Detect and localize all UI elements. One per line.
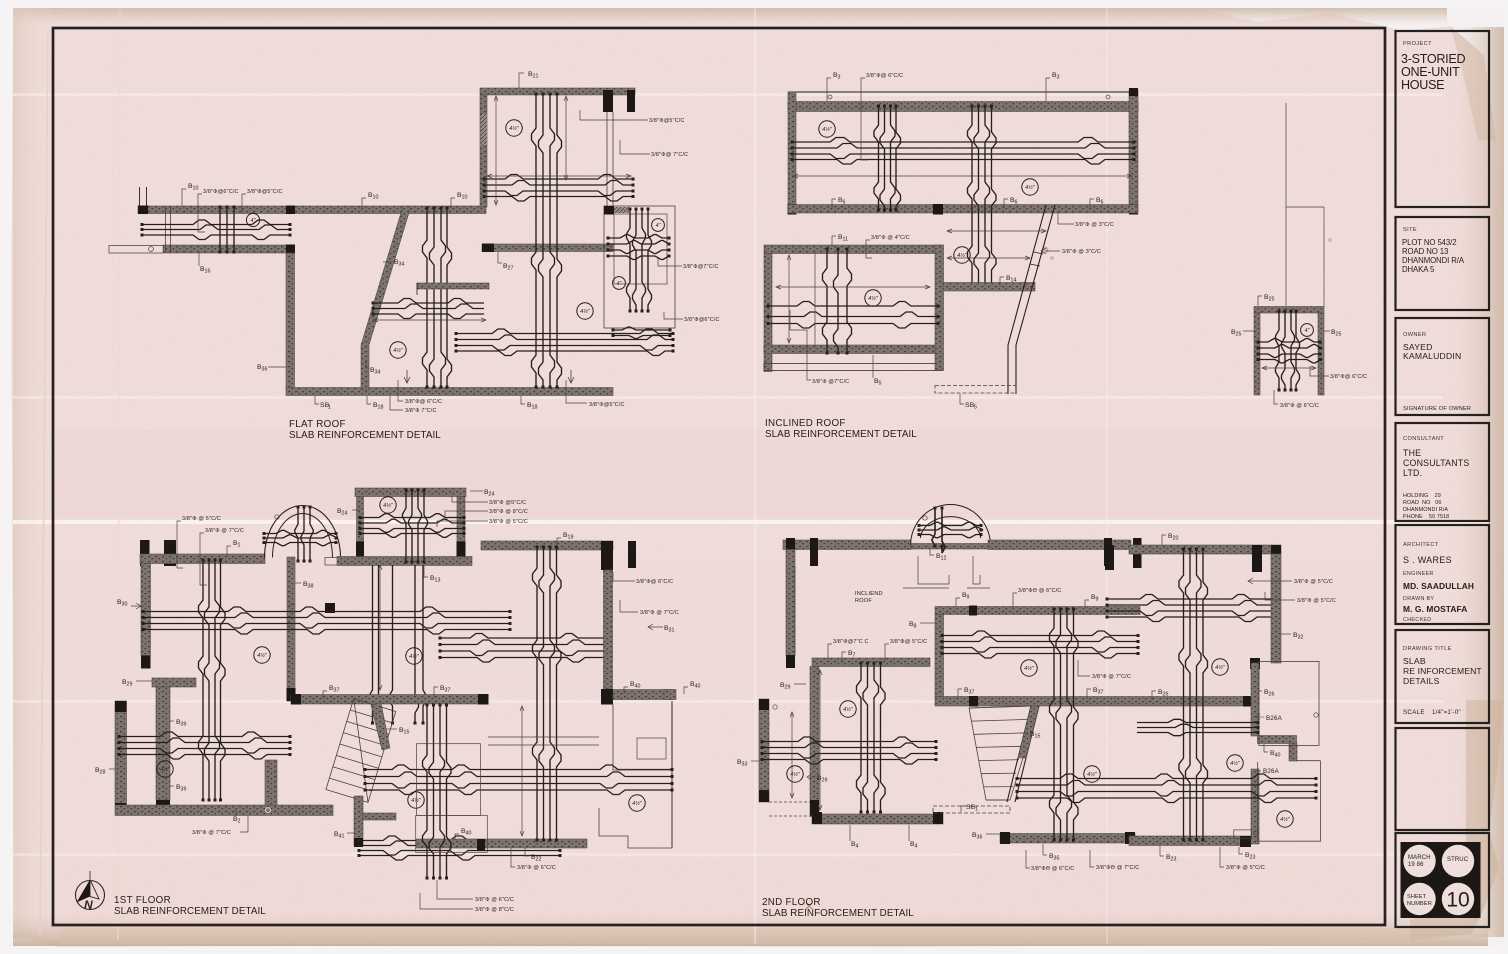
svg-text:3/8"Φ @ 7"C/C: 3/8"Φ @ 7"C/C bbox=[1092, 674, 1131, 680]
svg-text:DHAKA 5: DHAKA 5 bbox=[1402, 265, 1435, 274]
svg-text:3/8"Φ @ 5"C/C: 3/8"Φ @ 5"C/C bbox=[1297, 598, 1336, 604]
svg-text:N: N bbox=[84, 898, 93, 912]
svg-text:3/8"Φ @ 7"C/C: 3/8"Φ @ 7"C/C bbox=[192, 830, 231, 836]
svg-text:PROJECT: PROJECT bbox=[1403, 41, 1432, 47]
svg-text:3/8"Φ @ 3"C/C: 3/8"Φ @ 3"C/C bbox=[1062, 249, 1101, 255]
svg-text:FLAT ROOF: FLAT ROOF bbox=[289, 419, 346, 430]
svg-text:3/8"ΦΘ @ 6"C/C: 3/8"ΦΘ @ 6"C/C bbox=[1018, 588, 1061, 594]
svg-text:3/8"Φ@ 6"C/C: 3/8"Φ@ 6"C/C bbox=[405, 399, 442, 405]
svg-text:4½": 4½" bbox=[383, 502, 394, 509]
svg-text:4½": 4½" bbox=[1087, 771, 1098, 778]
svg-text:3/8"ΦΘ @ 6"C/C: 3/8"ΦΘ @ 6"C/C bbox=[1031, 866, 1074, 872]
svg-text:4½": 4½" bbox=[1025, 184, 1036, 191]
svg-text:3/8"Φ @7"C/C: 3/8"Φ @7"C/C bbox=[812, 379, 849, 385]
svg-text:3/8"Φ@6"C/C: 3/8"Φ@6"C/C bbox=[684, 317, 720, 323]
svg-text:10: 10 bbox=[1446, 889, 1469, 912]
svg-text:3/8"Φ@7"C/C: 3/8"Φ@7"C/C bbox=[683, 264, 719, 270]
svg-text:MD. SAADULLAH: MD. SAADULLAH bbox=[1403, 581, 1474, 591]
svg-text:1: 1 bbox=[975, 807, 978, 813]
svg-text:3/8"Φ @ 5"C/C: 3/8"Φ @ 5"C/C bbox=[489, 519, 528, 525]
svg-text:3/8"Φ@ 7"C/C: 3/8"Φ@ 7"C/C bbox=[651, 152, 688, 158]
svg-text:CHECKED: CHECKED bbox=[1403, 617, 1431, 623]
svg-text:4½": 4½" bbox=[257, 652, 268, 659]
svg-text:5: 5 bbox=[974, 405, 977, 411]
svg-text:4½": 4½" bbox=[580, 308, 591, 315]
svg-text:MARCH: MARCH bbox=[1408, 855, 1431, 861]
svg-text:SITE: SITE bbox=[1403, 227, 1417, 233]
svg-text:S . WARES: S . WARES bbox=[1403, 555, 1452, 565]
svg-text:4½": 4½" bbox=[160, 766, 171, 773]
svg-text:SLAB REINFORCEMENT DETAIL: SLAB REINFORCEMENT DETAIL bbox=[762, 908, 914, 919]
svg-text:1/4"=1'-0": 1/4"=1'-0" bbox=[1432, 709, 1461, 716]
svg-text:SLAB REINFORCEMENT DETAIL: SLAB REINFORCEMENT DETAIL bbox=[114, 906, 266, 917]
svg-text:SLAB REINFORCEMENT DETAIL: SLAB REINFORCEMENT DETAIL bbox=[765, 429, 917, 440]
svg-text:3/8"Φ@ 6"C/C: 3/8"Φ@ 6"C/C bbox=[636, 579, 673, 585]
svg-text:LTD.: LTD. bbox=[1403, 468, 1422, 478]
svg-text:3/8"Φ @ 7"C/C: 3/8"Φ @ 7"C/C bbox=[205, 528, 244, 534]
svg-text:4½": 4½" bbox=[822, 126, 833, 133]
svg-text:3/8"Φ@5"C/C: 3/8"Φ@5"C/C bbox=[649, 118, 685, 124]
svg-text:3/8"Φ @ 4"C/C: 3/8"Φ @ 4"C/C bbox=[871, 235, 910, 241]
svg-text:2ND FLOOR: 2ND FLOOR bbox=[762, 897, 821, 908]
svg-text:ROAD NO 13: ROAD NO 13 bbox=[1402, 247, 1448, 256]
svg-text:OWNER: OWNER bbox=[1403, 332, 1426, 338]
svg-text:PHONE 50 7518: PHONE 50 7518 bbox=[1403, 514, 1449, 520]
svg-text:B26A: B26A bbox=[1263, 768, 1280, 775]
svg-text:STRUC: STRUC bbox=[1447, 857, 1469, 863]
svg-text:1ST FLOOR: 1ST FLOOR bbox=[114, 895, 171, 906]
svg-text:3/8"Φ @ 8"C/C: 3/8"Φ @ 8"C/C bbox=[475, 907, 514, 913]
svg-text:3/8"Φ 7"C/C: 3/8"Φ 7"C/C bbox=[405, 408, 437, 414]
svg-text:HOLDING 29: HOLDING 29 bbox=[1403, 493, 1441, 499]
svg-text:DETAILS: DETAILS bbox=[1403, 676, 1440, 686]
svg-text:SLAB: SLAB bbox=[1403, 656, 1426, 666]
svg-text:B26A: B26A bbox=[1266, 715, 1283, 722]
svg-text:THE: THE bbox=[1403, 448, 1421, 458]
svg-text:DRAWN BY: DRAWN BY bbox=[1403, 596, 1434, 602]
svg-text:3-STORIED: 3-STORIED bbox=[1401, 52, 1465, 66]
svg-text:4½": 4½" bbox=[1024, 665, 1035, 672]
svg-text:4½": 4½" bbox=[1230, 760, 1241, 767]
svg-text:CONSULTANTS: CONSULTANTS bbox=[1403, 458, 1469, 468]
svg-text:3/8"Φ @ 6"C/C: 3/8"Φ @ 6"C/C bbox=[475, 897, 514, 903]
svg-text:ENGINEER: ENGINEER bbox=[1403, 571, 1434, 577]
svg-text:3/8"Φ@ 5"C/C: 3/8"Φ@ 5"C/C bbox=[890, 639, 927, 645]
svg-text:DHANMONDI R/A: DHANMONDI R/A bbox=[1402, 256, 1465, 265]
svg-text:3/8"ΦΘ @ 7"C/C: 3/8"ΦΘ @ 7"C/C bbox=[1096, 865, 1139, 871]
svg-text:1: 1 bbox=[328, 405, 331, 411]
svg-text:PLOT NO 543/2: PLOT NO 543/2 bbox=[1402, 238, 1456, 247]
svg-text:19 86: 19 86 bbox=[1408, 862, 1424, 868]
svg-text:INCLIEND: INCLIEND bbox=[855, 591, 883, 597]
svg-text:SLAB REINFORCEMENT DETAIL: SLAB REINFORCEMENT DETAIL bbox=[289, 430, 441, 441]
svg-text:3/8"Φ @5"C/C: 3/8"Φ @5"C/C bbox=[489, 500, 526, 506]
svg-text:ONE-UNIT: ONE-UNIT bbox=[1401, 65, 1460, 79]
svg-text:SIGNATURE OF OWNER: SIGNATURE OF OWNER bbox=[1403, 406, 1471, 412]
svg-text:3/8"Φ@7"C C: 3/8"Φ@7"C C bbox=[833, 639, 869, 645]
svg-text:DRAWING TITLE: DRAWING TITLE bbox=[1403, 646, 1452, 652]
svg-text:M. G. MOSTAFA: M. G. MOSTAFA bbox=[1403, 604, 1467, 614]
svg-text:3/8"Φ@6"C/C: 3/8"Φ@6"C/C bbox=[203, 189, 239, 195]
svg-text:RE INFORCEMENT: RE INFORCEMENT bbox=[1403, 666, 1482, 676]
svg-text:3/8"Φ @ 7"C/C: 3/8"Φ @ 7"C/C bbox=[640, 610, 679, 616]
svg-text:3/8"Φ @ 5"C/C: 3/8"Φ @ 5"C/C bbox=[182, 516, 221, 522]
svg-text:KAMALUDDIN: KAMALUDDIN bbox=[1403, 351, 1461, 361]
svg-text:4½": 4½" bbox=[843, 706, 854, 713]
svg-text:3/8"Φ @ 6"C/C: 3/8"Φ @ 6"C/C bbox=[1280, 403, 1319, 409]
svg-text:ARCHITECT: ARCHITECT bbox=[1403, 542, 1439, 548]
svg-text:INCLINED ROOF: INCLINED ROOF bbox=[765, 418, 846, 429]
svg-text:4½": 4½" bbox=[1280, 816, 1291, 823]
svg-text:3/8"Φ @ 3"C/C: 3/8"Φ @ 3"C/C bbox=[1075, 222, 1114, 228]
svg-text:SCALE: SCALE bbox=[1403, 709, 1425, 716]
svg-text:3/8"Φ@ 6"C/C: 3/8"Φ@ 6"C/C bbox=[866, 73, 903, 79]
svg-text:ROOF: ROOF bbox=[855, 598, 872, 604]
svg-text:DHANMONDI R/A: DHANMONDI R/A bbox=[1403, 507, 1448, 513]
svg-text:4½": 4½" bbox=[409, 653, 420, 660]
svg-text:3/8"Φ@ 6"C/C: 3/8"Φ@ 6"C/C bbox=[1330, 374, 1367, 380]
svg-text:SHEET: SHEET bbox=[1407, 894, 1427, 900]
svg-text:4½": 4½" bbox=[790, 771, 801, 778]
svg-text:4½": 4½" bbox=[868, 295, 879, 302]
svg-text:4½": 4½" bbox=[393, 347, 404, 354]
svg-text:4½": 4½" bbox=[1215, 664, 1226, 671]
svg-text:3/8"Φ@5"C/C: 3/8"Φ@5"C/C bbox=[589, 402, 625, 408]
svg-text:3/8"Φ @ 6"C/C: 3/8"Φ @ 6"C/C bbox=[517, 865, 556, 871]
svg-text:NUMBER: NUMBER bbox=[1407, 901, 1432, 907]
svg-text:ROAD NO 06: ROAD NO 06 bbox=[1403, 500, 1441, 506]
svg-text:4½": 4½" bbox=[957, 252, 968, 259]
svg-text:3/8"Φ @ 5"C/C: 3/8"Φ @ 5"C/C bbox=[1294, 579, 1333, 585]
svg-text:4½": 4½" bbox=[509, 125, 520, 132]
svg-text:HOUSE: HOUSE bbox=[1401, 78, 1444, 92]
svg-text:3/8"Φ @ 8"C/C: 3/8"Φ @ 8"C/C bbox=[489, 509, 528, 515]
svg-text:3/8"Φ @ 5"C/C: 3/8"Φ @ 5"C/C bbox=[1226, 865, 1265, 871]
svg-text:CONSULTANT: CONSULTANT bbox=[1403, 436, 1444, 442]
svg-text:4½": 4½" bbox=[632, 800, 643, 807]
svg-text:3/8"Φ@5"C/C: 3/8"Φ@5"C/C bbox=[247, 189, 283, 195]
